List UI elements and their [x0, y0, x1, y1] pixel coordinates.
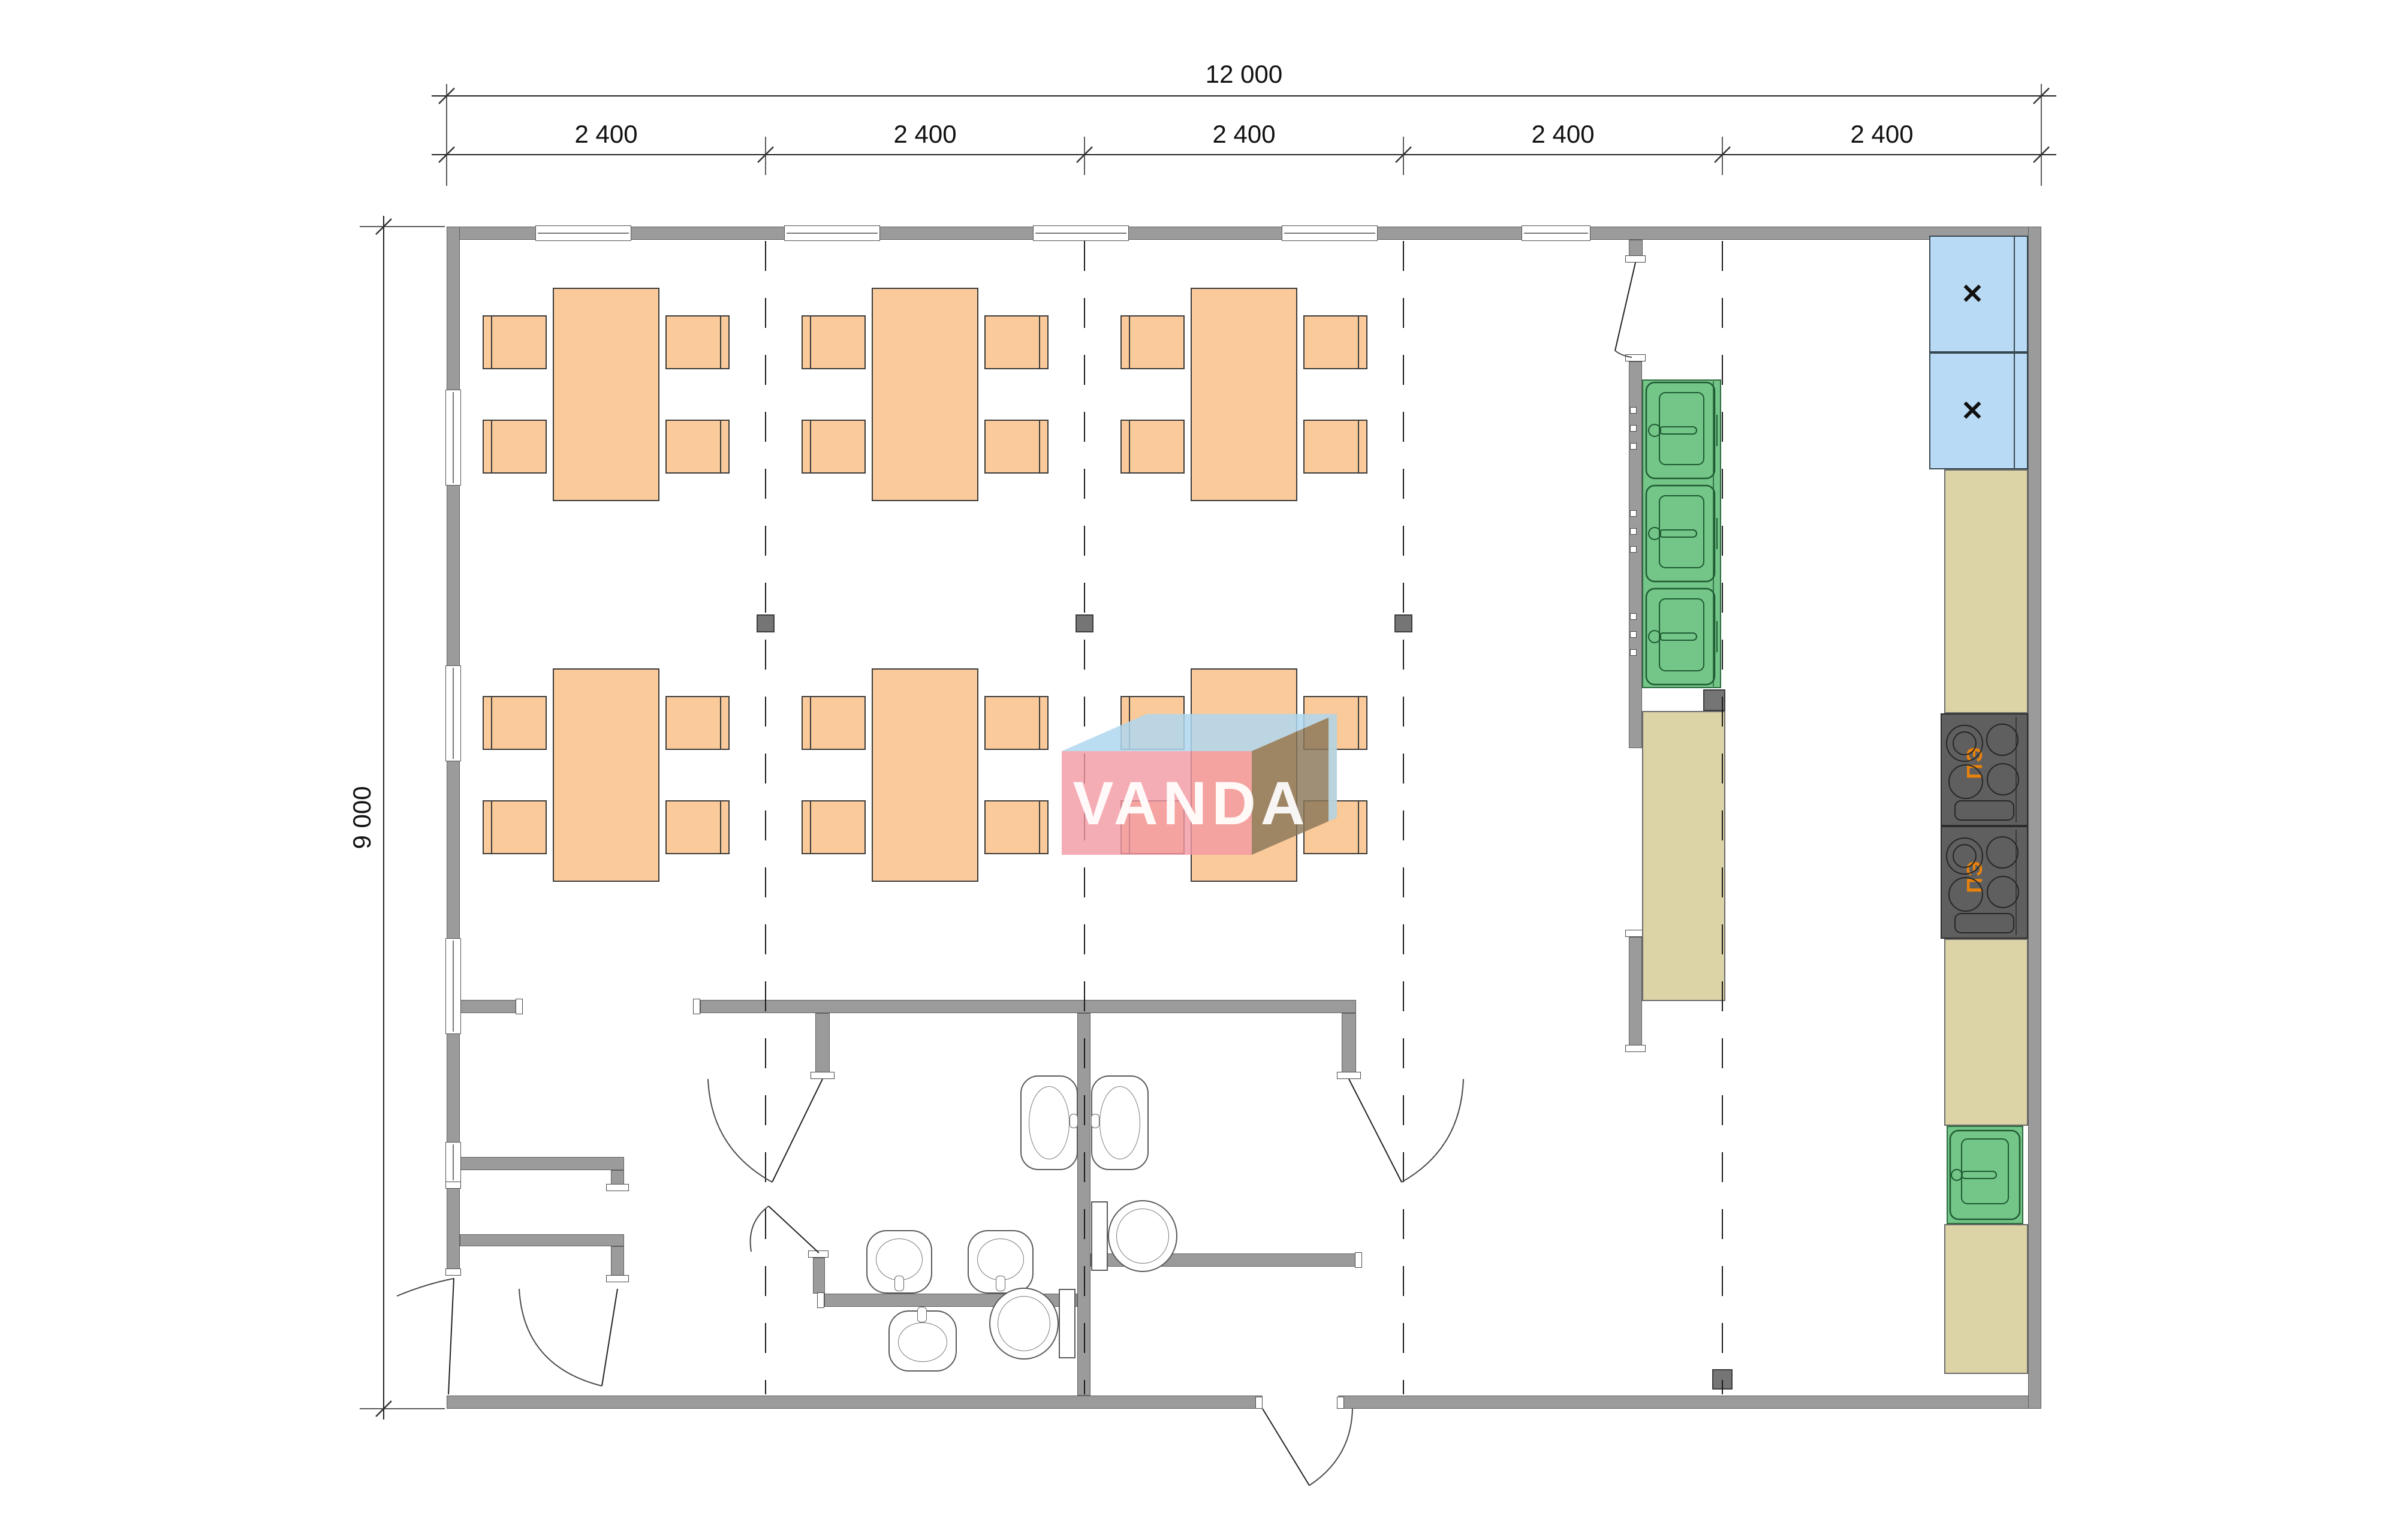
- watermark-text: VANDA: [1050, 769, 1332, 839]
- floor-plan-canvas: VANDA 12 000 9 000 2 4002 4002 4002 4002…: [0, 0, 2398, 1540]
